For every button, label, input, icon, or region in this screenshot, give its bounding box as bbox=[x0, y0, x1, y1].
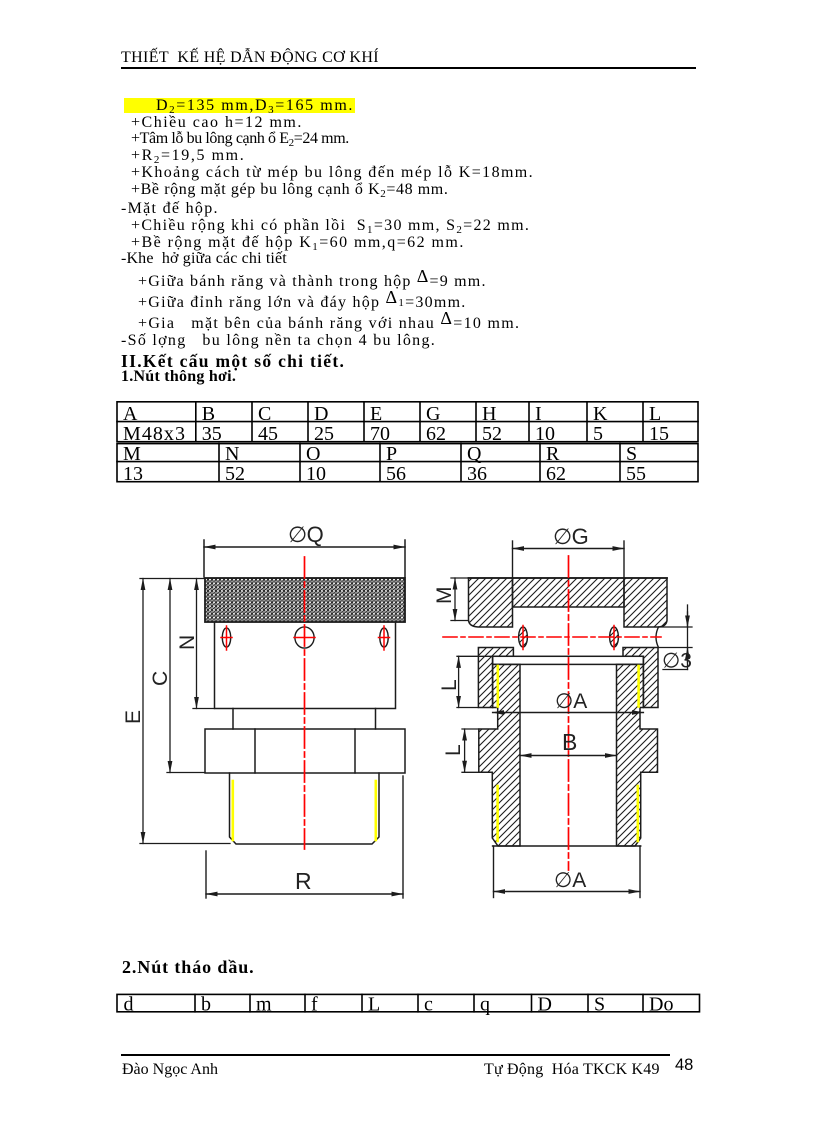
svg-text:B: B bbox=[202, 403, 215, 425]
svg-text:5: 5 bbox=[593, 423, 603, 445]
svg-text:c: c bbox=[424, 993, 433, 1015]
svg-text:25: 25 bbox=[314, 423, 334, 445]
svg-text:E: E bbox=[122, 710, 145, 724]
svg-text:I: I bbox=[535, 403, 542, 425]
svg-text:R: R bbox=[295, 868, 312, 894]
svg-text:10: 10 bbox=[306, 463, 326, 485]
svg-text:K: K bbox=[593, 403, 608, 425]
svg-text:M: M bbox=[433, 587, 456, 605]
svg-text:15: 15 bbox=[649, 423, 669, 445]
svg-text:M48x3: M48x3 bbox=[123, 423, 186, 445]
svg-text:N: N bbox=[176, 635, 199, 650]
svg-text:Q: Q bbox=[467, 443, 482, 465]
svg-text:S: S bbox=[594, 993, 605, 1015]
svg-text:C: C bbox=[258, 403, 271, 425]
svg-text:∅A: ∅A bbox=[554, 869, 586, 892]
svg-text:L: L bbox=[649, 403, 661, 425]
svg-text:G: G bbox=[426, 403, 440, 425]
svg-text:62: 62 bbox=[426, 423, 446, 445]
svg-text:L: L bbox=[438, 679, 461, 691]
svg-text:70: 70 bbox=[370, 423, 390, 445]
svg-text:E: E bbox=[370, 403, 382, 425]
svg-text:P: P bbox=[386, 443, 397, 465]
svg-text:B: B bbox=[562, 729, 577, 755]
svg-text:45: 45 bbox=[258, 423, 278, 445]
svg-text:D: D bbox=[314, 403, 328, 425]
svg-text:52: 52 bbox=[225, 463, 245, 485]
svg-text:A: A bbox=[123, 403, 138, 425]
svg-text:L: L bbox=[442, 744, 465, 756]
svg-text:13: 13 bbox=[123, 463, 143, 485]
svg-text:∅3: ∅3 bbox=[662, 650, 692, 673]
svg-text:b: b bbox=[201, 993, 211, 1015]
svg-text:D: D bbox=[538, 993, 552, 1015]
svg-text:35: 35 bbox=[202, 423, 222, 445]
svg-text:∅G: ∅G bbox=[553, 524, 588, 549]
svg-text:d: d bbox=[124, 993, 134, 1015]
svg-text:55: 55 bbox=[626, 463, 646, 485]
svg-text:H: H bbox=[482, 403, 496, 425]
svg-text:62: 62 bbox=[546, 463, 566, 485]
svg-text:m: m bbox=[256, 993, 272, 1015]
svg-text:q: q bbox=[480, 993, 490, 1015]
svg-text:∅A: ∅A bbox=[555, 690, 587, 713]
svg-text:L: L bbox=[368, 993, 380, 1015]
svg-text:56: 56 bbox=[386, 463, 406, 485]
svg-text:S: S bbox=[626, 443, 637, 465]
svg-text:Do: Do bbox=[649, 993, 673, 1015]
svg-text:O: O bbox=[306, 443, 320, 465]
svg-text:10: 10 bbox=[535, 423, 555, 445]
svg-text:∅Q: ∅Q bbox=[288, 522, 324, 547]
svg-text:N: N bbox=[225, 443, 239, 465]
svg-text:C: C bbox=[149, 671, 172, 686]
svg-text:36: 36 bbox=[467, 463, 487, 485]
svg-text:f: f bbox=[311, 993, 318, 1015]
svg-text:R: R bbox=[546, 443, 560, 465]
svg-text:M: M bbox=[123, 443, 141, 465]
svg-text:52: 52 bbox=[482, 423, 502, 445]
